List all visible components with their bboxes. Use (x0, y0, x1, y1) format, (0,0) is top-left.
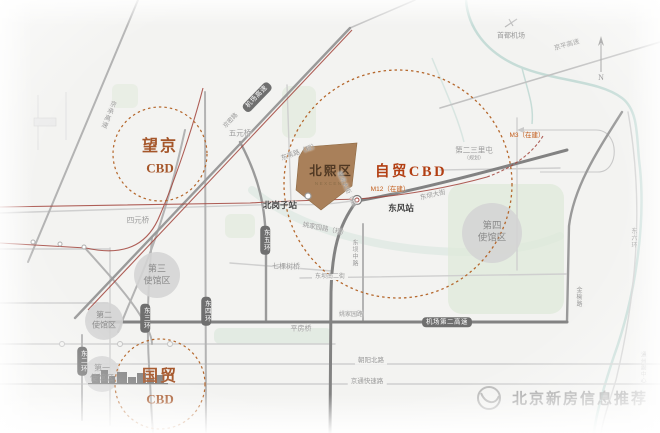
tongzhou-label: 通州副中心 (639, 352, 645, 385)
embassy-third-line2: 使馆区 (143, 275, 170, 287)
second-sanlitun-label: 第二三里屯 (455, 146, 493, 154)
pingfangqiao-label: 平房桥 (291, 326, 312, 333)
dongfeng-station-label: 东风站 (388, 204, 414, 213)
compass-north-label: N (598, 74, 604, 82)
guomao-cbd-sublabel: CBD (146, 393, 173, 406)
embassy-third-label: 第三 使馆区 (143, 263, 170, 286)
beigangzi-station-label: 北岗子站 (263, 201, 297, 210)
project-name-label: 北熙区 (309, 165, 353, 178)
embassy-fourth-line1: 第四 (478, 221, 507, 233)
embassy-first-line1: 第一 (90, 364, 114, 374)
dong-san-huan-pill: 东三环 (140, 304, 150, 333)
m12-line-label: M12（在建） (371, 187, 410, 194)
embassy-third-line1: 第三 (143, 263, 170, 275)
jichang-dier-gaosu-pill: 机场第二高速 (422, 317, 472, 327)
second-sanlitun-note-label: （规划） (464, 157, 484, 162)
embassy-second-line2: 使馆区 (92, 321, 116, 331)
siyuanqiao-label: 四元桥 (127, 216, 150, 224)
wuyuanqiao-label: 五元桥 (229, 129, 252, 137)
watermark-logo-icon (478, 387, 500, 409)
embassy-fourth-label: 第四 使馆区 (478, 221, 507, 246)
embassy-fourth-line2: 使馆区 (478, 233, 507, 245)
zimao-cbd-label: 自贸CBD (375, 165, 447, 180)
yaojiayuan-lu-label: 姚家园路 (339, 312, 363, 318)
airplane-icon (505, 19, 517, 27)
location-map: 望京 CBD 国贸 CBD 自贸CBD 北熙区 NEXCENE M12（在建） … (0, 0, 660, 433)
minor-roads (34, 92, 66, 150)
watermark-text: 北京新房信息推荐 (512, 388, 648, 409)
qikeshuqiao-label: 七棵树桥 (272, 264, 300, 271)
dong-wu-huan-pill: 东五环 (260, 226, 270, 255)
dongba-zhonglu-label: 东坝中路 (351, 239, 357, 267)
wangjing-cbd-label: 望京 (142, 139, 178, 155)
embassy-first-label: 第一 使馆区 (90, 364, 114, 385)
airport-label: 首都机场 (497, 33, 525, 40)
embassy-first-line2: 使馆区 (90, 374, 114, 384)
jinyu-lu-label: 金榆路 (575, 287, 581, 308)
m3-line-label: M3（在建） (509, 133, 544, 140)
dong-liu-huan-label: 东六环 (630, 228, 636, 249)
dong-er-huan-pill: 东二环 (77, 347, 87, 376)
embassy-second-label: 第二 使馆区 (92, 311, 116, 332)
wangjing-cbd-sublabel: CBD (146, 162, 173, 175)
m3-line-dashed (487, 136, 543, 177)
embassy-second-line1: 第二 (92, 311, 116, 321)
compass-icon (598, 36, 604, 72)
dongba-nanerjie-label: 东坝南二街 (312, 274, 348, 280)
chaoyang-beilu-label: 朝阳北路 (355, 358, 387, 365)
jingtong-kuaisulu-label: 京通快速路 (348, 379, 387, 386)
guomao-cbd-label: 国贸 (142, 369, 178, 385)
station-dot-beigangzi (305, 193, 311, 199)
dong-si-huan-pill: 东四环 (201, 297, 211, 326)
